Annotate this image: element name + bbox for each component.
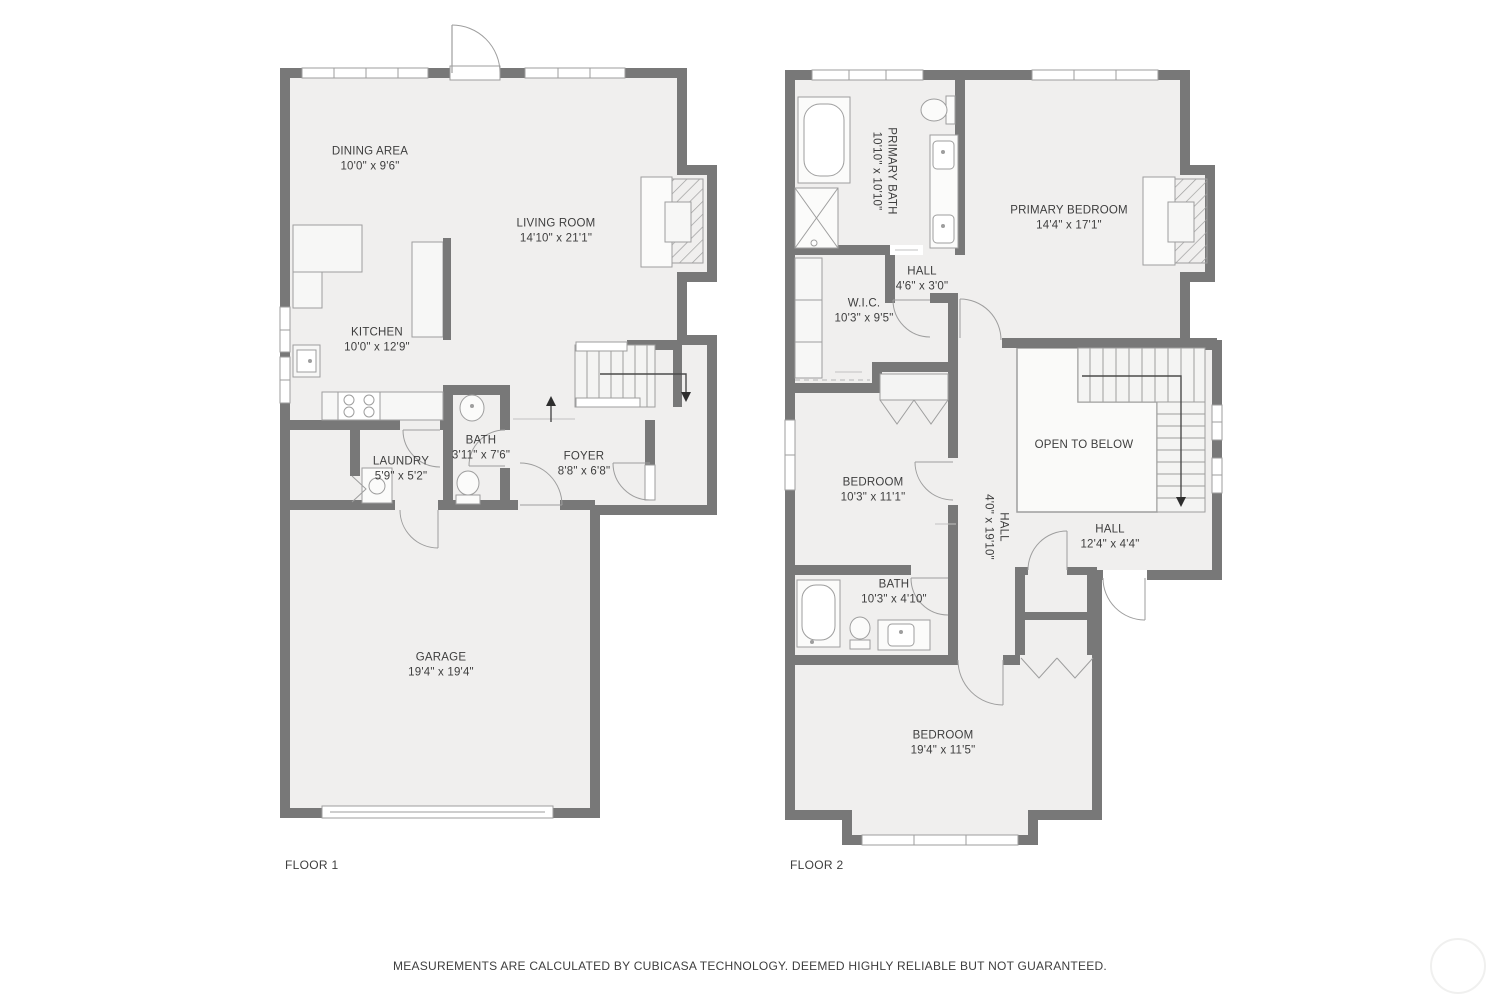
room-name: PRIMARY BATH [884,127,899,214]
front-door [450,25,500,80]
room-name: GARAGE [408,651,474,666]
room-label-primary-bath: PRIMARY BATH 10'10" x 10'10" [870,127,899,214]
room-dims: 8'8" x 6'8" [558,464,610,479]
room-label-living-room: LIVING ROOM 14'10" x 21'1" [517,217,596,246]
room-dims: 10'0" x 9'6" [332,159,408,174]
room-name: HALL [996,494,1011,560]
room-dims: 10'3" x 9'5" [834,311,893,326]
room-name: BEDROOM [911,729,976,744]
room-label-open-to-below: OPEN TO BELOW [1035,438,1134,453]
vanity2-symbol [878,620,930,650]
room-label-dining-area: DINING AREA 10'0" x 9'6" [332,145,408,174]
garage-door-symbol [322,806,553,818]
room-label-laundry: LAUNDRY 5'9" x 5'2" [373,455,429,484]
room-label-hall-small: HALL 4'6" x 3'0" [896,265,948,294]
room-label-garage: GARAGE 19'4" x 19'4" [408,651,474,680]
room-name: BATH [452,434,510,449]
room-name: PRIMARY BEDROOM [1010,204,1128,219]
room-label-bedroom-bottom: BEDROOM 19'4" x 11'5" [911,729,976,758]
room-dims: 19'4" x 19'4" [408,665,474,680]
room-dims: 3'11" x 7'6" [452,448,510,463]
room-name: BATH [861,578,927,593]
shower-symbol [795,188,838,248]
room-dims: 19'4" x 11'5" [911,743,976,758]
room-dims: 4'0" x 19'10" [982,494,997,560]
room-label-bath2: BATH 10'3" x 4'10" [861,578,927,607]
stove-symbol [338,392,380,420]
floor1-label: FLOOR 1 [285,858,338,872]
room-dims: 10'10" x 10'10" [870,127,885,214]
room-name: LAUNDRY [373,455,429,470]
room-name: HALL [1080,523,1139,538]
room-name: KITCHEN [344,326,410,341]
room-label-bath1: BATH 3'11" x 7'6" [452,434,510,463]
bathtub2-symbol [797,580,840,647]
room-label-foyer: FOYER 8'8" x 6'8" [558,450,610,479]
fireplace2-symbol [1143,177,1207,265]
floorplan-drawing [0,0,1500,1000]
disclaimer-text: MEASUREMENTS ARE CALCULATED BY CUBICASA … [0,959,1500,973]
bathtub-symbol [798,97,850,183]
floor2-label: FLOOR 2 [790,858,843,872]
room-name: OPEN TO BELOW [1035,438,1134,453]
room-dims: 10'3" x 11'1" [841,490,906,505]
room-dims: 10'0" x 12'9" [344,340,410,355]
room-label-kitchen: KITCHEN 10'0" x 12'9" [344,326,410,355]
room-name: HALL [896,265,948,280]
room-label-primary-bedroom: PRIMARY BEDROOM 14'4" x 17'1" [1010,204,1128,233]
room-label-wic: W.I.C. 10'3" x 9'5" [834,297,893,326]
room-name: LIVING ROOM [517,217,596,232]
room-label-bedroom-mid: BEDROOM 10'3" x 11'1" [841,476,906,505]
floor2-plan [785,70,1222,845]
room-dims: 14'10" x 21'1" [517,231,596,246]
floorplan-canvas: DINING AREA 10'0" x 9'6" LIVING ROOM 14'… [0,0,1500,1000]
room-dims: 14'4" x 17'1" [1010,218,1128,233]
double-vanity-symbol [930,135,958,248]
room-name: DINING AREA [332,145,408,160]
room-label-hall-right: HALL 12'4" x 4'4" [1080,523,1139,552]
room-dims: 12'4" x 4'4" [1080,537,1139,552]
room-dims: 5'9" x 5'2" [373,469,429,484]
room-name: BEDROOM [841,476,906,491]
room-dims: 4'6" x 3'0" [896,279,948,294]
room-name: FOYER [558,450,610,465]
room-name: W.I.C. [834,297,893,312]
fireplace-symbol [641,177,703,267]
room-dims: 10'3" x 4'10" [861,592,927,607]
toilet2-symbol [850,617,870,649]
room-label-hall-vertical: HALL 4'0" x 19'10" [982,494,1011,560]
